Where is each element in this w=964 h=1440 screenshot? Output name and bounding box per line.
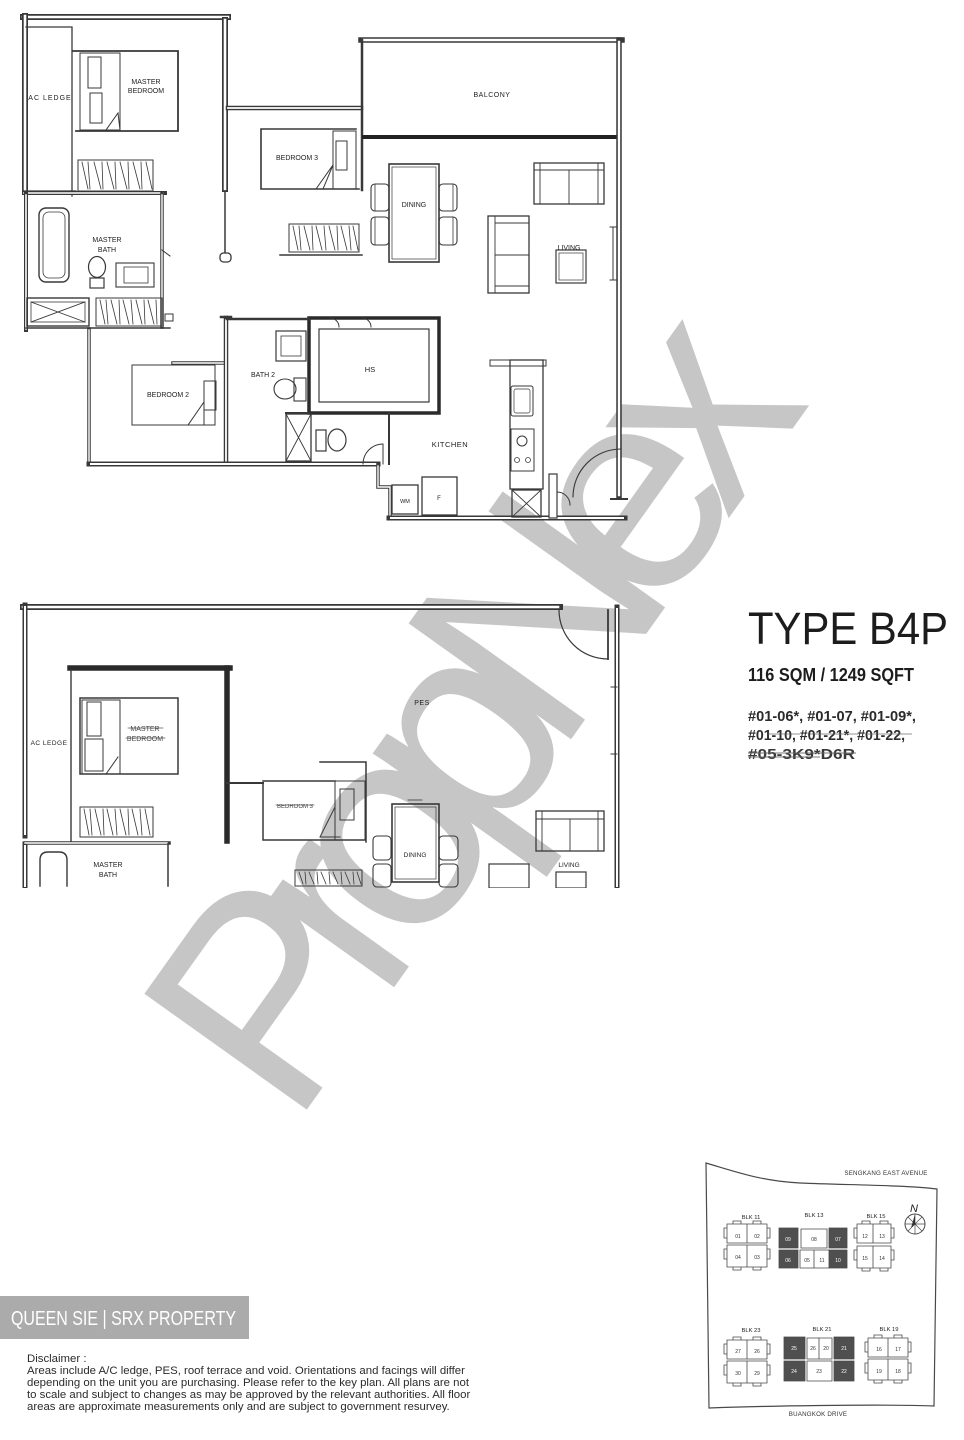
svg-text:07: 07 bbox=[835, 1237, 841, 1243]
svg-text:areas are approximate measurem: areas are approximate measurements only … bbox=[27, 1401, 450, 1413]
svg-text:MASTER: MASTER bbox=[92, 237, 121, 244]
svg-text:#01-10, #01-21*, #01-22,: #01-10, #01-21*, #01-22, bbox=[748, 727, 905, 744]
svg-text:12: 12 bbox=[862, 1234, 868, 1240]
svg-text:PropNex: PropNex bbox=[80, 251, 863, 1166]
svg-text:MASTER: MASTER bbox=[130, 726, 159, 733]
svg-text:10: 10 bbox=[835, 1258, 841, 1264]
svg-text:19: 19 bbox=[876, 1369, 882, 1375]
svg-text:BLK 13: BLK 13 bbox=[804, 1213, 823, 1219]
svg-text:N: N bbox=[910, 1203, 918, 1215]
svg-text:BEDROOM 2: BEDROOM 2 bbox=[147, 392, 189, 399]
svg-text:F: F bbox=[437, 496, 441, 502]
svg-text:BLK 23: BLK 23 bbox=[741, 1328, 760, 1334]
svg-text:Areas include A/C ledge, PES,: Areas include A/C ledge, PES, roof terra… bbox=[27, 1365, 465, 1377]
svg-text:20: 20 bbox=[823, 1346, 829, 1352]
svg-text:30: 30 bbox=[735, 1371, 741, 1377]
svg-text:02: 02 bbox=[754, 1234, 760, 1240]
svg-text:22: 22 bbox=[841, 1369, 847, 1375]
svg-text:MASTER: MASTER bbox=[131, 79, 160, 86]
svg-text:BATH: BATH bbox=[98, 247, 116, 254]
svg-text:MASTER: MASTER bbox=[93, 862, 122, 869]
svg-text:13: 13 bbox=[879, 1234, 885, 1240]
svg-text:01: 01 bbox=[735, 1234, 741, 1240]
svg-text:08: 08 bbox=[811, 1237, 817, 1243]
svg-text:DINING: DINING bbox=[404, 852, 427, 859]
svg-text:09: 09 bbox=[785, 1237, 791, 1243]
svg-text:BATH: BATH bbox=[99, 872, 117, 879]
svg-text:23: 23 bbox=[816, 1369, 822, 1375]
svg-text:WM: WM bbox=[400, 499, 410, 505]
svg-text:#01-06*, #01-07, #01-09*,: #01-06*, #01-07, #01-09*, bbox=[748, 708, 916, 725]
svg-text:BLK 21: BLK 21 bbox=[812, 1327, 831, 1333]
svg-text:29: 29 bbox=[754, 1371, 760, 1377]
svg-text:16: 16 bbox=[876, 1347, 882, 1353]
svg-text:LIVING: LIVING bbox=[558, 245, 581, 252]
svg-text:TYPE B4P: TYPE B4P bbox=[748, 603, 948, 654]
svg-text:BEDROOM 3: BEDROOM 3 bbox=[276, 155, 318, 162]
svg-text:#05-3K9*D6R: #05-3K9*D6R bbox=[748, 746, 855, 763]
svg-text:BLK 11: BLK 11 bbox=[742, 1215, 761, 1221]
svg-text:BEDROOM: BEDROOM bbox=[127, 736, 163, 743]
svg-text:depending on the unit you are: depending on the unit you are purchasing… bbox=[27, 1377, 470, 1389]
svg-text:PES: PES bbox=[414, 700, 430, 707]
svg-text:HS: HS bbox=[365, 365, 375, 374]
svg-text:AC LEDGE: AC LEDGE bbox=[28, 95, 71, 102]
svg-text:BLK 19: BLK 19 bbox=[879, 1327, 898, 1333]
svg-text:BUANGKOK DRIVE: BUANGKOK DRIVE bbox=[789, 1411, 848, 1418]
svg-text:11: 11 bbox=[819, 1258, 824, 1264]
svg-text:Disclaimer :: Disclaimer : bbox=[27, 1353, 87, 1365]
svg-text:15: 15 bbox=[862, 1256, 868, 1262]
svg-text:05: 05 bbox=[804, 1258, 810, 1264]
svg-text:SENGKANG EAST AVENUE: SENGKANG EAST AVENUE bbox=[844, 1170, 927, 1177]
svg-text:03: 03 bbox=[754, 1255, 760, 1261]
svg-text:BEDROOM: BEDROOM bbox=[128, 88, 164, 95]
svg-text:116 SQM / 1249 SQFT: 116 SQM / 1249 SQFT bbox=[748, 665, 914, 685]
svg-text:18: 18 bbox=[895, 1369, 901, 1375]
svg-text:AC LEDGE: AC LEDGE bbox=[31, 740, 68, 747]
svg-text:DINING: DINING bbox=[402, 202, 427, 209]
svg-text:27: 27 bbox=[735, 1349, 741, 1355]
svg-text:26: 26 bbox=[754, 1349, 760, 1355]
svg-text:BLK 15: BLK 15 bbox=[866, 1214, 885, 1220]
svg-text:KITCHEN: KITCHEN bbox=[432, 440, 468, 449]
svg-text:LIVING: LIVING bbox=[558, 862, 579, 869]
svg-text:14: 14 bbox=[879, 1256, 885, 1262]
svg-text:26: 26 bbox=[810, 1346, 816, 1352]
svg-text:BATH 2: BATH 2 bbox=[251, 372, 275, 379]
svg-text:to scale and subject to change: to scale and subject to changes as may b… bbox=[27, 1389, 470, 1401]
svg-text:06: 06 bbox=[785, 1258, 791, 1264]
svg-text:21: 21 bbox=[841, 1346, 847, 1352]
svg-text:25: 25 bbox=[791, 1346, 797, 1352]
svg-text:17: 17 bbox=[895, 1347, 901, 1353]
svg-text:24: 24 bbox=[791, 1369, 797, 1375]
svg-text:BALCONY: BALCONY bbox=[474, 92, 511, 99]
svg-text:QUEEN SIE | SRX PROPERTY: QUEEN SIE | SRX PROPERTY bbox=[11, 1307, 236, 1330]
svg-text:04: 04 bbox=[735, 1255, 741, 1261]
